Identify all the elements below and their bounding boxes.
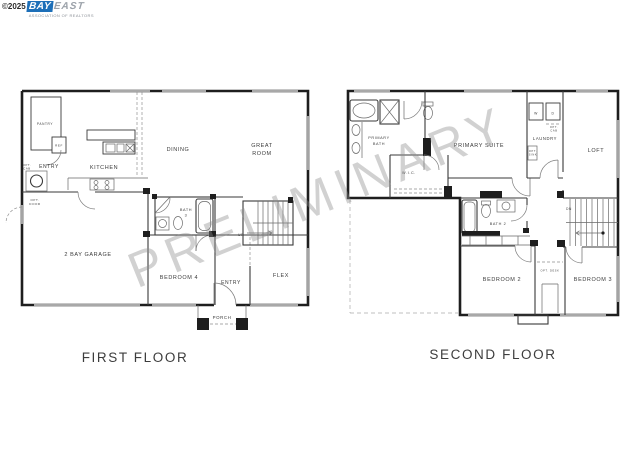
label-entry-rear: ENTRY <box>221 280 241 286</box>
label-up: UP <box>238 233 244 237</box>
label-bath3-2: 3 <box>185 214 188 218</box>
label-bath2: BATH 2 <box>490 222 507 226</box>
label-loft: LOFT <box>588 148 604 154</box>
label-washer: W <box>534 112 538 116</box>
label-primary-suite: PRIMARY SUITE <box>454 143 504 149</box>
floorplan-document: ©2025 BAY EAST ASSOCIATION OF REALTORS <box>0 0 640 462</box>
label-porch: PORCH <box>213 315 232 320</box>
label-great-room: GREAT <box>251 143 273 149</box>
label-opt-cab-2f: OPT. <box>550 125 558 129</box>
label-flex: FLEX <box>273 273 289 279</box>
label-wic: W.I.C. <box>402 171 416 175</box>
label-ref: REF <box>55 144 63 148</box>
label-dryer: D <box>551 112 554 116</box>
first-floor-caption: FIRST FLOOR <box>60 350 210 365</box>
first-floor-plan: PANTRY REF ENTRY KITCHEN DINING GREAT RO… <box>6 91 308 330</box>
logo-tagline: ASSOCIATION OF REALTORS <box>29 13 94 18</box>
label-great-room-2: ROOM <box>252 151 272 157</box>
brand-block: BAY EAST ASSOCIATION OF REALTORS <box>27 1 94 18</box>
copyright-text: ©2025 <box>2 2 26 12</box>
label-bedroom3: BEDROOM 3 <box>574 277 612 283</box>
label-opt-sink-2: SINK <box>529 153 537 157</box>
label-primary-bath-2: BATH <box>373 142 385 146</box>
label-bath3: BATH <box>180 208 192 212</box>
label-bedroom2: BEDROOM 2 <box>483 277 521 283</box>
label-opt-cab-2f-2: CAB <box>550 129 557 133</box>
label-entry-front: ENTRY <box>39 164 59 170</box>
logo-bay-text: BAY <box>26 1 53 12</box>
label-pantry: PANTRY <box>37 122 54 126</box>
label-opt-sink: OPT. <box>529 149 537 153</box>
label-kitchen: KITCHEN <box>90 165 118 171</box>
label-primary-bath: PRIMARY <box>368 136 389 140</box>
label-opt-desk: OPT. DESK <box>541 269 560 273</box>
label-opt-door-2: DOOR <box>29 202 41 206</box>
bayeast-logo: ©2025 BAY EAST ASSOCIATION OF REALTORS <box>2 1 94 18</box>
label-garage: 2 BAY GARAGE <box>64 252 111 258</box>
floorplan-drawing: PANTRY REF ENTRY KITCHEN DINING GREAT RO… <box>0 0 640 462</box>
label-opt-cab-2: CAB <box>23 167 31 171</box>
logo-east-text: EAST <box>53 1 85 12</box>
label-laundry: LAUNDRY <box>533 136 557 141</box>
label-dn: DN <box>566 207 572 211</box>
second-floor-caption: SECOND FLOOR <box>413 347 573 362</box>
label-bedroom4: BEDROOM 4 <box>160 275 198 281</box>
second-floor-plan: PRIMARY BATH W.I.C. PRIMARY SUITE LAUNDR… <box>348 91 618 324</box>
label-dining: DINING <box>167 147 190 153</box>
